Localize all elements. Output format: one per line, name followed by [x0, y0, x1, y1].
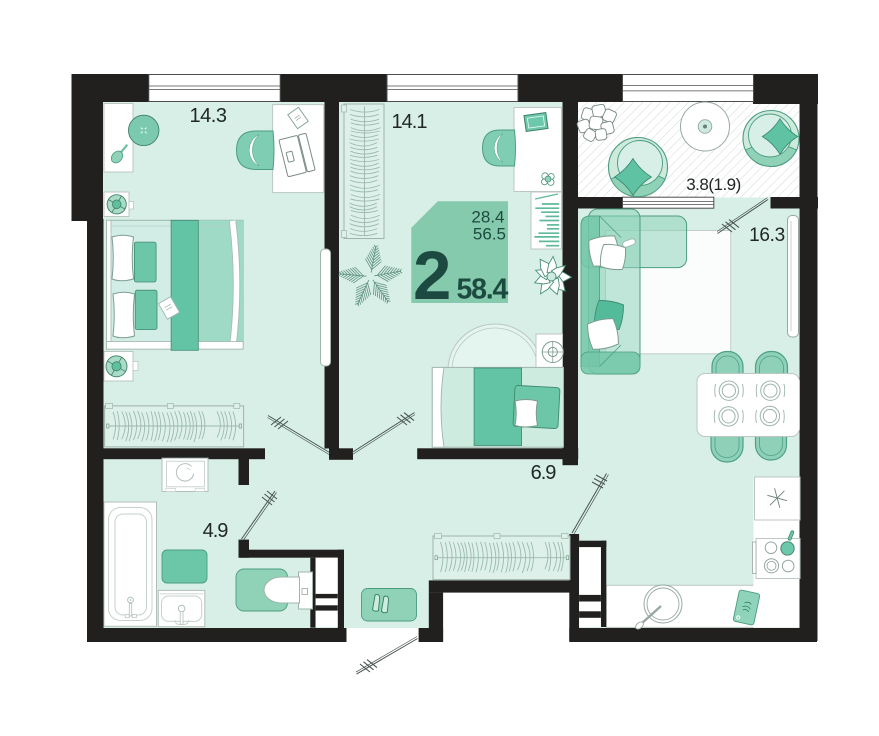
- svg-text:16.3: 16.3: [749, 225, 785, 246]
- svg-text:28.4: 28.4: [471, 208, 504, 227]
- svg-text:3.8(1.9): 3.8(1.9): [686, 175, 741, 194]
- svg-text:14.1: 14.1: [392, 111, 428, 133]
- svg-text:58.4: 58.4: [457, 274, 509, 306]
- svg-text:4.9: 4.9: [203, 520, 229, 542]
- svg-text:14.3: 14.3: [190, 105, 227, 127]
- svg-text:56.5: 56.5: [473, 225, 506, 244]
- svg-text:2: 2: [413, 237, 451, 314]
- svg-text:6.9: 6.9: [531, 462, 557, 484]
